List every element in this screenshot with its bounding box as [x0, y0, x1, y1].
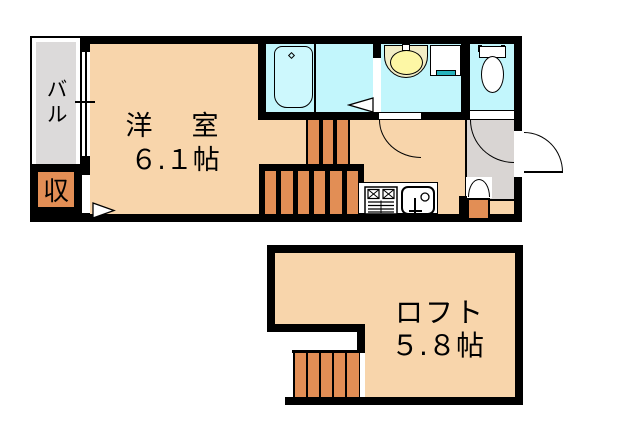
- toilet-bowl-icon: [481, 56, 504, 93]
- front-door-swing-arc: [524, 132, 563, 172]
- washbasin-bowl-icon: [390, 50, 423, 75]
- stairs-lower-flight: [259, 164, 364, 222]
- closet-label: 収: [43, 171, 69, 208]
- closet-floor: 収: [38, 172, 74, 207]
- kitchen-sink-icon: [400, 185, 436, 216]
- stair-tread: [314, 171, 325, 214]
- washing-machine-pan-icon: [436, 70, 456, 76]
- wall-stub: [459, 196, 467, 222]
- front-door-frame: [514, 131, 522, 177]
- loft-wall-left: [267, 245, 275, 332]
- stair-tread: [330, 171, 341, 214]
- bathtub-edge-line: [314, 44, 316, 112]
- wall-corner: [461, 110, 470, 120]
- balcony-floor: バル: [36, 42, 76, 164]
- stair-tread: [308, 353, 319, 397]
- loft-size-label: ５.８帖: [350, 324, 525, 364]
- stair-tread: [321, 353, 332, 397]
- stair-tread: [334, 353, 345, 397]
- stair-tread: [265, 171, 276, 214]
- entrance-storage: [467, 198, 490, 220]
- wall-wet-bottom: [258, 112, 461, 120]
- toilet-door-opening: [470, 110, 514, 120]
- bath-door-direction-marker: [347, 97, 374, 113]
- wall-bottom-left: [30, 214, 82, 222]
- washbasin-tap-icon: [402, 44, 410, 51]
- closet-door-opening: [82, 175, 90, 213]
- window-tick: [75, 101, 95, 103]
- bath-door-opening: [373, 58, 381, 112]
- loft-wall-top: [267, 245, 523, 253]
- stair-tread: [347, 171, 358, 214]
- closet-door-direction-marker: [92, 202, 116, 219]
- stair-tread: [295, 353, 306, 397]
- room-size-label: ６.１帖: [85, 138, 265, 177]
- stairs-upper-flight: [306, 120, 350, 166]
- stair-tread: [298, 171, 309, 214]
- stair-tread: [308, 120, 319, 166]
- stair-tread: [323, 120, 334, 166]
- loft-wall-bottom: [285, 397, 523, 405]
- washroom-door-opening: [379, 112, 421, 120]
- stair-tread: [337, 120, 348, 166]
- floor-plan: バル 収: [0, 0, 620, 424]
- balcony-label: バル: [41, 78, 71, 128]
- stove-icon: [364, 186, 398, 215]
- front-door-leaf: [524, 171, 563, 173]
- stair-tread: [281, 171, 292, 214]
- wall-washroom-toilet: [461, 44, 470, 112]
